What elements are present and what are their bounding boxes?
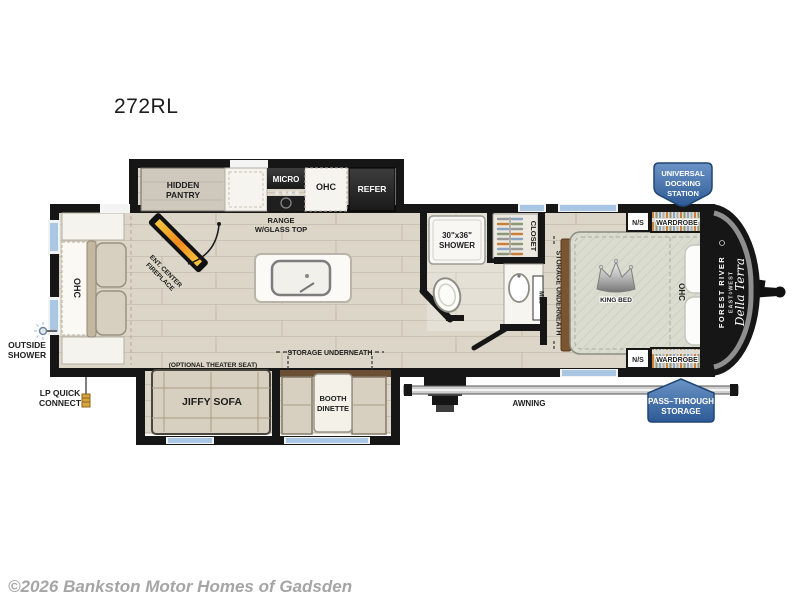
pantry-label-2: PANTRY	[166, 190, 200, 200]
window	[286, 438, 368, 443]
window	[560, 205, 616, 211]
island-sink	[272, 261, 330, 295]
floorplan-page: 272RL OHC	[0, 0, 800, 600]
kitchen-ohc-label: OHC	[316, 182, 337, 192]
floorplan-diagram: 272RL OHC	[0, 0, 800, 600]
ns-top-label: N/S	[632, 220, 644, 227]
brand-make: FOREST RIVER	[717, 256, 726, 328]
docking-label-3: STATION	[667, 189, 699, 198]
lp-connector-icon	[82, 394, 90, 407]
sofa-cushion	[96, 291, 126, 335]
lp-quick-connect-group: LP QUICK CONNECT	[39, 377, 90, 408]
bedroom: STORAGE UNDERNEATH OHC KING BED N/S WARD…	[554, 211, 710, 369]
docking-station-badge: UNIVERSAL DOCKING STATION	[654, 163, 712, 206]
pantry-label-1: HIDDEN	[167, 180, 200, 190]
bath-sink	[509, 274, 529, 302]
window	[50, 300, 58, 332]
refer-label: REFER	[358, 184, 387, 194]
booth-label-1: BOOTH	[319, 394, 346, 403]
window-over-counter	[230, 160, 268, 168]
outside-shower-icon	[40, 328, 47, 335]
shower	[429, 216, 485, 264]
end-table-top	[62, 213, 124, 240]
rear-ohc-label: OHC	[72, 278, 82, 299]
window	[520, 205, 544, 211]
page-title: 272RL	[114, 95, 178, 118]
shower-label-2: SHOWER	[439, 241, 475, 250]
pass-through-badge: PASS–THROUGH STORAGE	[648, 379, 714, 422]
theater-option-label: (OPTIONAL THEATER SEAT)	[169, 362, 257, 369]
copyright-text: ©2026 Bankston Motor Homes of Gadsden	[8, 577, 352, 596]
pass-through-label-2: STORAGE	[661, 407, 701, 416]
front-cap: FOREST RIVER EAST◊WEST Della Terra	[700, 204, 760, 376]
booth-label-2: DINETTE	[317, 404, 349, 413]
outside-shower-label-2: SHOWER	[8, 350, 46, 360]
wardrobe-top-label: WARDROBE	[656, 220, 698, 227]
kitchen-counter	[225, 168, 267, 211]
window	[562, 370, 616, 376]
window	[50, 223, 58, 251]
sofa-cushion	[96, 243, 126, 287]
range-label-2: W/GLASS TOP	[255, 225, 307, 234]
lp-label-1: LP QUICK	[40, 388, 81, 398]
ns-bottom-label: N/S	[632, 357, 644, 364]
docking-label-2: DOCKING	[665, 179, 701, 188]
jiffy-sofa-label: JIFFY SOFA	[182, 396, 242, 408]
shower-label-1: 30"x36"	[442, 231, 472, 240]
closet-label: CLOSET	[529, 221, 538, 252]
micro-label: MICRO	[273, 175, 300, 184]
faucet	[305, 274, 309, 278]
docking-label-1: UNIVERSAL	[661, 169, 705, 178]
wardrobe-bottom-label: WARDROBE	[656, 357, 698, 364]
dinette-storage-label: STORAGE UNDERNEATH	[288, 350, 373, 357]
outside-shower-label-1: OUTSIDE	[8, 340, 46, 350]
king-bed-label: KING BED	[600, 297, 632, 304]
bed-storage-label: STORAGE UNDERNEATH	[555, 251, 562, 336]
range-label-1: RANGE	[267, 216, 294, 225]
end-table-bottom	[62, 337, 124, 364]
kitchen-island	[255, 254, 351, 302]
window	[168, 438, 212, 443]
awning-label: AWNING	[513, 399, 546, 408]
pass-through-label-1: PASS–THROUGH	[648, 397, 714, 406]
dinette-table	[314, 374, 352, 432]
sofa-backrest	[87, 241, 96, 337]
brand-model: Della Terra	[733, 258, 747, 327]
slide-divider-wall	[272, 368, 280, 445]
lp-label-2: CONNECT	[39, 398, 82, 408]
